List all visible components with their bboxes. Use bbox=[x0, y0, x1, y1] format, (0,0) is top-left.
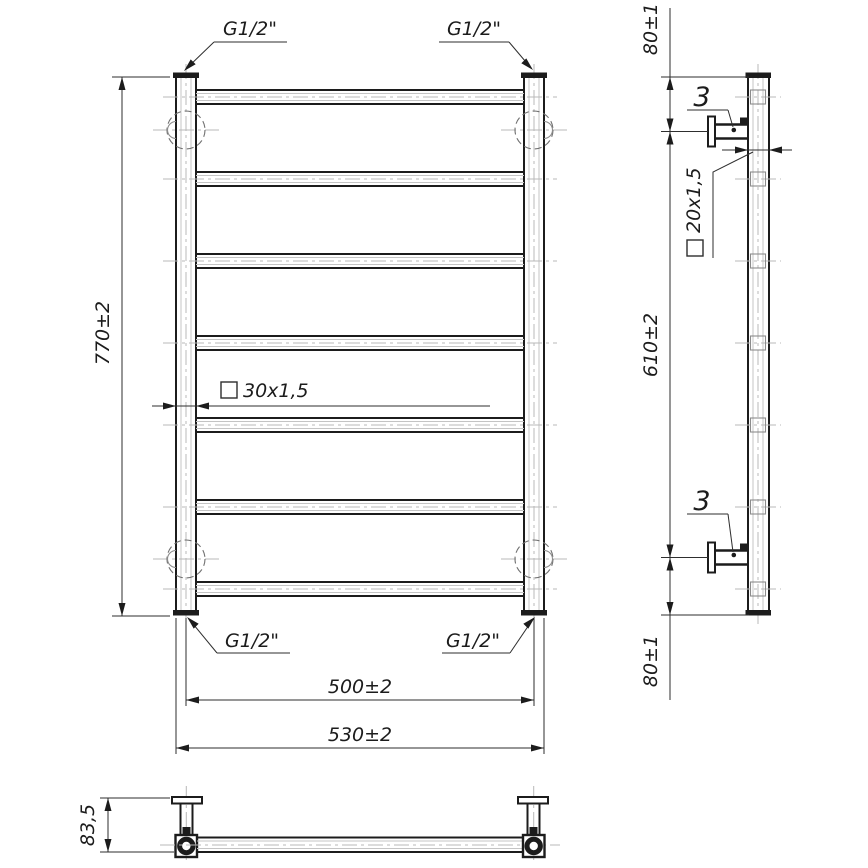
bracket-set-screw bbox=[530, 827, 538, 835]
right-post-top-cap bbox=[521, 73, 547, 79]
bracket-set-screw bbox=[740, 544, 747, 551]
leader-dot bbox=[732, 553, 737, 558]
overall-width-dimension-label: 530±2 bbox=[328, 724, 392, 746]
dimension-rung-profile-20: 20x1,5 bbox=[683, 147, 792, 259]
height-dimension-label: 770±2 bbox=[92, 301, 114, 365]
dimension-depth-83-5: 83,5 bbox=[77, 798, 174, 852]
bottom-view: 83,5 bbox=[77, 786, 560, 864]
side-post-bottom-cap bbox=[746, 610, 772, 616]
side-post bbox=[746, 64, 772, 624]
thread-label-top-right: G1/2" bbox=[439, 18, 535, 72]
rung-7 bbox=[163, 582, 557, 596]
rung-profile-label: 20x1,5 bbox=[683, 167, 705, 233]
bracket-span-dimension-label: 610±2 bbox=[640, 313, 662, 377]
thread-size-label: G1/2" bbox=[223, 18, 277, 40]
thread-size-label: G1/2" bbox=[446, 630, 500, 652]
dimension-height-770: 770±2 bbox=[92, 77, 170, 616]
post-assembly-right bbox=[518, 786, 548, 864]
wall-flange bbox=[172, 797, 202, 804]
thread-label-top-left: G1/2" bbox=[182, 18, 287, 73]
post-profile-label: 30x1,5 bbox=[243, 380, 309, 402]
square-profile-symbol bbox=[687, 240, 703, 256]
thread-label-bottom-right: G1/2" bbox=[442, 615, 537, 653]
drawing-page: 770±2 500±2 530±2 30x1,5 bbox=[0, 0, 868, 868]
side-post-top-cap bbox=[746, 73, 772, 79]
wall-bracket-bottom bbox=[708, 543, 748, 573]
dimension-post-profile-30: 30x1,5 bbox=[152, 380, 490, 410]
left-post-top-cap bbox=[173, 73, 199, 79]
thread-size-label: G1/2" bbox=[225, 630, 279, 652]
right-post-bottom-cap bbox=[521, 610, 547, 616]
thread-size-label: G1/2" bbox=[447, 18, 501, 40]
rung-3 bbox=[163, 254, 557, 268]
bracket-flange bbox=[708, 543, 715, 573]
bracket-set-screw bbox=[183, 827, 191, 835]
connecting-bar bbox=[160, 838, 560, 853]
rung-6 bbox=[163, 500, 557, 514]
bracket-flange bbox=[708, 117, 715, 147]
bracket-item-number-bottom: 3 bbox=[693, 486, 710, 517]
front-view: 770±2 500±2 530±2 30x1,5 bbox=[92, 18, 567, 754]
rung-1 bbox=[163, 90, 557, 104]
bracket-item-number-top: 3 bbox=[693, 82, 710, 113]
thread-label-bottom-left: G1/2" bbox=[185, 615, 290, 653]
rung-2 bbox=[163, 172, 557, 186]
rung-4 bbox=[163, 336, 557, 350]
left-post-bottom-cap bbox=[173, 610, 199, 616]
bottom-offset-dimension-label: 80±1 bbox=[640, 635, 662, 687]
towel-rail-technical-drawing: 770±2 500±2 530±2 30x1,5 bbox=[0, 0, 868, 868]
axis-width-dimension-label: 500±2 bbox=[328, 676, 392, 698]
top-offset-dimension-label: 80±1 bbox=[640, 3, 662, 55]
side-view: 80±1 610±2 80±1 20x1,5 3 3 bbox=[640, 3, 792, 700]
square-profile-symbol bbox=[221, 382, 237, 398]
wall-flange bbox=[518, 797, 548, 804]
rung-5 bbox=[163, 418, 557, 432]
depth-dimension-label: 83,5 bbox=[77, 804, 99, 846]
wall-bracket-top bbox=[708, 117, 748, 147]
bracket-set-screw bbox=[740, 118, 747, 125]
leader-dot bbox=[732, 128, 737, 133]
